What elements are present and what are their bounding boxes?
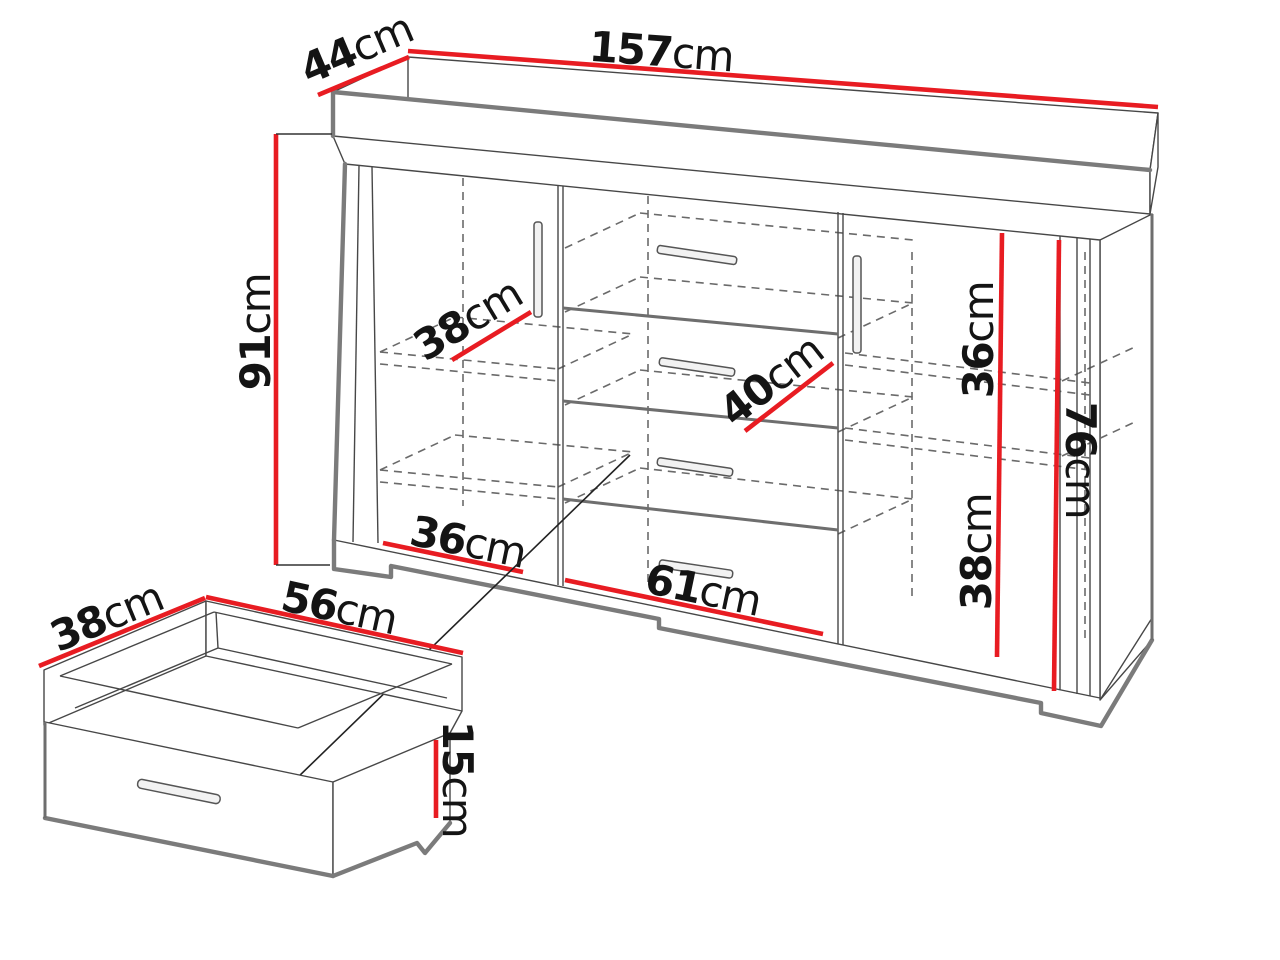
dim-right-lower-label: 38cm bbox=[952, 494, 1001, 610]
cabinet-right-side-panel bbox=[1100, 214, 1152, 700]
furniture-dimension-diagram: 44cm 157cm 91cm 38cm 40cm 36cm 38cm 76cm… bbox=[0, 0, 1280, 960]
dim-drawer-height-label: 15cm bbox=[433, 721, 482, 837]
right-door-handle bbox=[853, 256, 861, 353]
dim-interior-height-label: 76cm bbox=[1056, 402, 1105, 518]
cabinet-slab-to-body-left-line bbox=[333, 136, 345, 164]
dim-height-label: 91cm bbox=[231, 274, 280, 390]
drawer-front-panel bbox=[45, 722, 333, 876]
left-door-handle bbox=[534, 222, 542, 317]
cabinet-front-face bbox=[334, 164, 1100, 698]
drawer-detail-drawing: 38cm 56cm 15cm bbox=[39, 571, 482, 876]
dim-right-upper-label: 36cm bbox=[954, 282, 1003, 398]
